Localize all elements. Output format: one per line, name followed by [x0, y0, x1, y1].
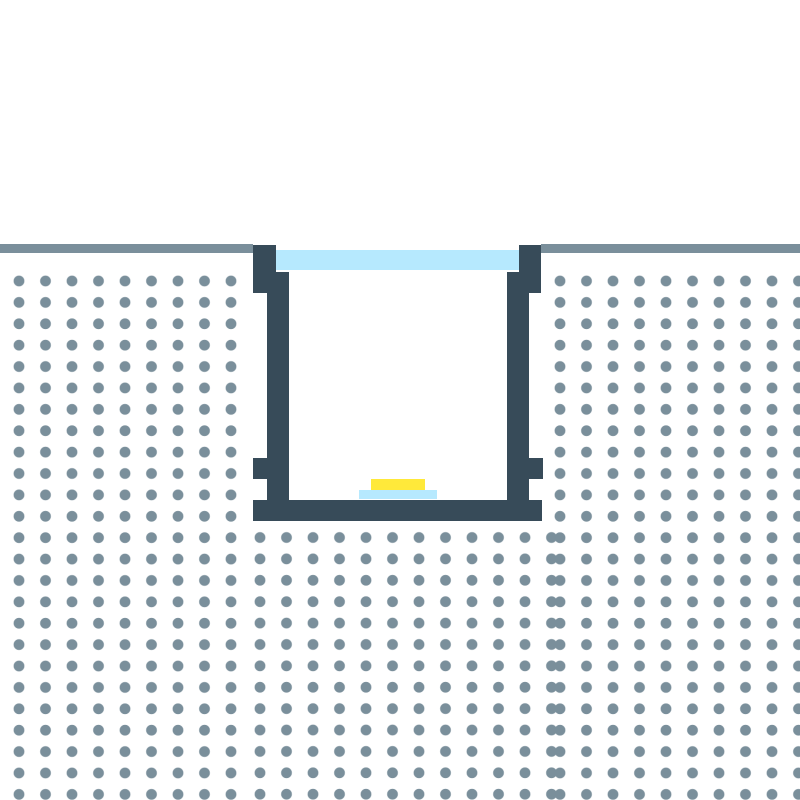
surface-line-left [0, 244, 253, 253]
channel-wall-left [267, 272, 289, 502]
dotted-material-left [0, 270, 246, 800]
recessed-led-profile-diagram [0, 0, 800, 800]
channel-base-bar [253, 500, 542, 521]
channel-wall-right [507, 272, 529, 502]
diffuser-cover [276, 250, 519, 270]
led-strip [371, 479, 425, 490]
channel-lug-left [253, 458, 268, 479]
dotted-material-bottom [246, 527, 568, 800]
dotted-material-right [553, 270, 800, 800]
channel-lug-right [528, 458, 543, 479]
led-base [359, 490, 437, 499]
surface-line-right [541, 244, 800, 253]
